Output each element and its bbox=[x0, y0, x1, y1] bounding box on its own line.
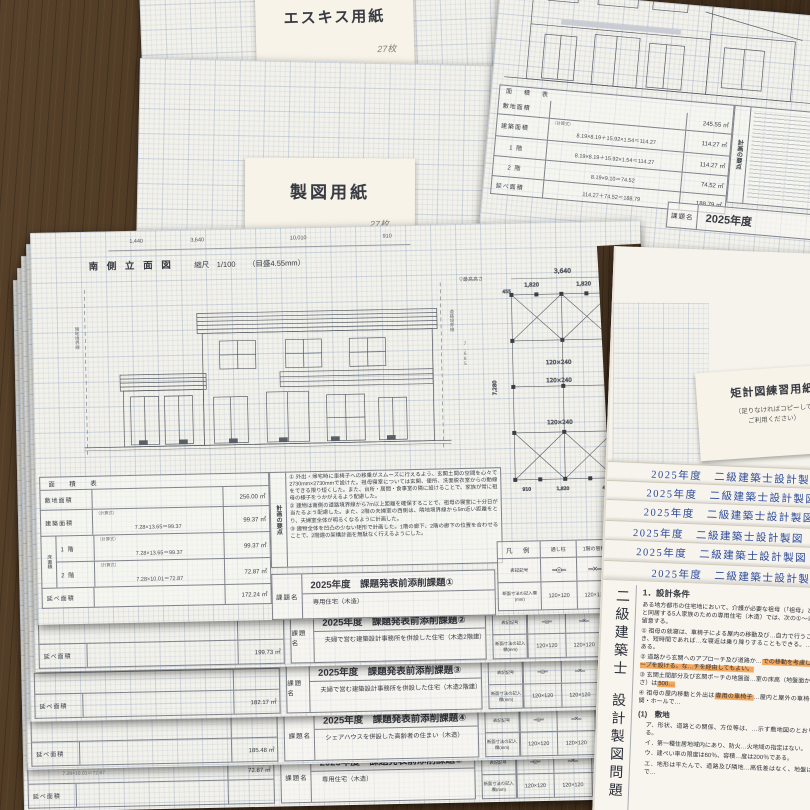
drawing-grid-note: （目盛4.55mm） bbox=[248, 258, 305, 268]
row-formula: 7.28×10.01＝72.87 bbox=[136, 574, 183, 583]
row-value: 99.37 ㎡ bbox=[223, 532, 270, 558]
note-title: 矩計図練習用紙 bbox=[696, 377, 810, 403]
row-value: 99.37 ㎡ bbox=[223, 506, 270, 532]
row-value: 256.00 ㎡ bbox=[222, 486, 268, 506]
row-value: 114.27 ㎡ bbox=[683, 131, 731, 156]
svg-text:120×240: 120×240 bbox=[546, 378, 572, 385]
kadai-label: 課題名 bbox=[666, 201, 698, 230]
row-label: 延べ面積 bbox=[29, 784, 77, 808]
esquisse-count: 27枚 bbox=[256, 42, 396, 59]
problem-body: 1．設計条件 ある地方都市の住宅地において、介護が必要な祖母（「祖母」という）と… bbox=[634, 586, 810, 810]
row-label: 延べ面積 bbox=[35, 694, 83, 718]
area-total bbox=[228, 780, 274, 804]
max-height-label: ▽最高高さ bbox=[459, 276, 483, 283]
area-table: 面 積 表 敷地面積256.00 ㎡ 建築面積（計算式）7.28×13.65＝9… bbox=[39, 472, 272, 609]
keypoint-3: ③ 建物全体を凹凸の少ない矩形で計画した。1階の廊下、2階の廊下の位置を合わせる… bbox=[290, 522, 498, 541]
area-value bbox=[237, 619, 283, 640]
topright-area-table: 面 積 表 敷地面積245.55 ㎡ 建築面積（計算式）8.19×8.19＋15… bbox=[490, 84, 735, 214]
elevation-dim-strip: 1,440 3,640 10,010 910 bbox=[108, 233, 410, 251]
dim-1440: 1,440 bbox=[108, 238, 164, 250]
kadai-subtitle: 夫婦で営む建築設計事務所を併設した住宅（木造2階建） bbox=[310, 677, 481, 696]
row-value: 74.52 ㎡ bbox=[680, 173, 727, 196]
row-label: 延べ面積 bbox=[491, 176, 544, 197]
area-formula bbox=[35, 670, 234, 694]
dim-10010: 10,010 bbox=[230, 234, 366, 248]
drafting-label: 製図用紙 bbox=[245, 178, 415, 204]
kadai-label: 課題名 bbox=[286, 661, 310, 713]
svg-text:7,280: 7,280 bbox=[492, 380, 498, 395]
row-label: 延べ面積 bbox=[39, 644, 87, 668]
height-dim: 7,685 bbox=[462, 342, 468, 367]
right-paper-stack: 矩計図練習用紙 （足りなければコピーして ご利用ください） 2025年度 二級建… bbox=[592, 246, 810, 810]
graph-paper-corner bbox=[613, 303, 710, 463]
keypoint-1: ① 外出・帰宅時に車椅子への移乗がスムーズに行えるよう、玄関土間の空間を心々で2… bbox=[289, 470, 498, 503]
row-label: 敷地面積 bbox=[40, 490, 92, 510]
kadai-label: 課題名 bbox=[284, 709, 315, 762]
area-total: 199.73 ㎡ bbox=[238, 640, 284, 664]
row-formula: 114.27＋74.52＝188.79 bbox=[582, 190, 640, 203]
kanabakari-note-card: 矩計図練習用紙 （足りなければコピーして ご利用ください） bbox=[695, 363, 810, 461]
area-value bbox=[231, 717, 277, 738]
highlighted-text: 専用の車椅子 bbox=[714, 694, 753, 701]
highlighted-text: 500… bbox=[657, 681, 675, 688]
area-total: 185.48 ㎡ bbox=[231, 738, 277, 762]
svg-text:120×240: 120×240 bbox=[547, 420, 573, 427]
row-label: 延べ面積 bbox=[42, 588, 94, 608]
row-label: 建築面積 bbox=[41, 510, 94, 536]
kadai-year: 2025年度 bbox=[697, 209, 753, 230]
svg-text:1,820: 1,820 bbox=[576, 281, 591, 287]
area-value bbox=[233, 669, 279, 690]
row-value: 172.24 ㎡ bbox=[224, 584, 270, 604]
size-row-label: 断面寸法の記入欄(mm) bbox=[482, 775, 516, 799]
esquisse-label: エスキス用紙 bbox=[255, 4, 413, 29]
problem-sheet: 二級建築士 設計製図問題 1．設計条件 ある地方都市の住宅地において、介護が必要… bbox=[594, 579, 810, 810]
south-elevation-drawing bbox=[66, 270, 465, 470]
kadai-label: 課題名 bbox=[271, 573, 302, 620]
row-formula: 7.28×13.65＝99.37 bbox=[136, 548, 183, 557]
svg-text:1,820: 1,820 bbox=[556, 486, 569, 492]
row-value: 72.87 ㎡ bbox=[224, 558, 271, 584]
area-table-title: 面 積 表 bbox=[40, 477, 101, 490]
problem-spine: 二級建築士 設計製図問題 bbox=[598, 584, 637, 810]
keypoints-blur-text bbox=[746, 111, 810, 207]
row-formula: 8.19×9.10＝74.52 bbox=[591, 173, 635, 185]
row-value: 114.27 ㎡ bbox=[682, 153, 729, 176]
kadai-subtitle: 夫婦で営む建築設計事務所を併設した住宅（木造2階建） bbox=[314, 627, 485, 646]
desk-photo: エスキス用紙 27枚 二級建築士試験 設計製図 清書用紙 木造用 １階平面図兼配… bbox=[0, 0, 810, 810]
dim-3640: 3,640 bbox=[164, 237, 230, 249]
floor-group-label: 床面積 bbox=[45, 555, 52, 570]
svg-text:910: 910 bbox=[522, 487, 531, 493]
row-label: 延べ面積 bbox=[32, 742, 80, 766]
kadai-subtitle: 専用住宅（木造） bbox=[303, 589, 495, 608]
title-block: 課題名 2025年度 課題発表前添削課題① 専用住宅（木造） bbox=[271, 569, 496, 620]
spine-text-1: 二級建築士 bbox=[608, 588, 631, 679]
keypoints-title: 計画の要点 bbox=[733, 139, 745, 170]
svg-text:3,640: 3,640 bbox=[554, 268, 572, 275]
keypoint-2: ② 建物は南側の道路境界線から7m以上距離を確保することで、祖母の寝室に十分日が… bbox=[290, 500, 498, 526]
area-total: 182.17 ㎡ bbox=[233, 690, 279, 714]
svg-text:120×240: 120×240 bbox=[546, 360, 572, 367]
kadai-subtitle: シェアハウスを併設した高齢者の住まい（木造） bbox=[315, 725, 477, 743]
dim-910: 910 bbox=[366, 233, 408, 245]
keypoints-block: 計画の要点 ① 外出・帰宅時に車椅子への移乗がスムーズに行えるよう、玄関土間の空… bbox=[269, 467, 503, 568]
keypoints-title: 計画の要点 bbox=[274, 505, 284, 535]
drawing-scale: 縮尺 1/100 bbox=[194, 260, 235, 270]
kadai-subtitle: 専用住宅（木造） bbox=[312, 767, 474, 785]
main-sheet-1: 1,440 3,640 10,010 910 南 側 立 面 図 縮尺 1/10… bbox=[30, 220, 648, 625]
svg-text:1,820: 1,820 bbox=[524, 282, 539, 288]
legend-title: 凡 例 bbox=[498, 541, 540, 558]
topright-keypoints: 計画の要点 bbox=[726, 105, 810, 211]
row-formula: 7.28×13.65＝99.37 bbox=[135, 522, 182, 531]
spine-text-2: 設計製図問題 bbox=[603, 692, 627, 801]
drawing-title: 南 側 立 面 図 bbox=[89, 260, 174, 273]
